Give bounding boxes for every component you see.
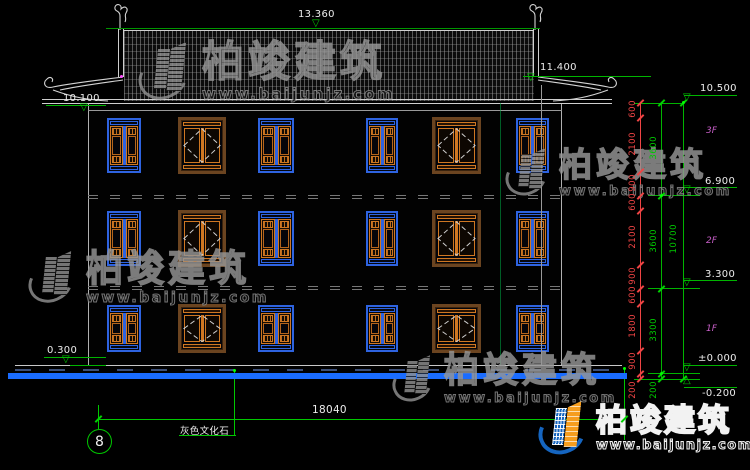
dim-text: 600 <box>628 100 638 118</box>
window-rail <box>110 345 138 349</box>
window-rail <box>437 122 476 126</box>
window-body <box>183 314 221 343</box>
window-body <box>369 313 395 344</box>
lattice <box>280 156 290 163</box>
pane <box>112 136 121 155</box>
lattice <box>521 315 529 322</box>
window-rail <box>110 121 138 125</box>
lattice <box>386 128 394 135</box>
window-casement <box>278 126 292 165</box>
elevation-marker-icon: ▽ <box>683 278 691 288</box>
wall-joint-line <box>500 103 501 366</box>
window-large <box>178 304 226 353</box>
elevation-value: 3.300 <box>705 269 735 280</box>
pane <box>386 323 394 334</box>
window-small <box>366 305 398 352</box>
level-line <box>44 357 106 358</box>
watermark-brand: 柏竣建筑 <box>86 250 269 289</box>
lattice <box>263 315 273 322</box>
lattice-diamond-icon <box>183 127 221 164</box>
elevation-value: 0.300 <box>47 345 77 356</box>
window-rail <box>110 166 138 170</box>
watermark-site: www.baijunjz.com <box>202 85 395 103</box>
dim-text: 900 <box>628 174 638 192</box>
window-casement <box>384 219 396 258</box>
level-line <box>648 373 700 374</box>
window-casement <box>278 219 292 258</box>
window-body <box>437 314 476 343</box>
window-small <box>258 118 294 173</box>
level-line <box>684 280 737 281</box>
pane <box>128 136 137 155</box>
wall-corner-line <box>541 85 542 366</box>
level-line <box>684 95 737 96</box>
dim-node <box>660 372 663 375</box>
dim-node <box>660 194 663 197</box>
lattice <box>386 249 394 256</box>
lattice <box>386 335 394 342</box>
wall-top-line <box>88 110 562 111</box>
lattice <box>371 128 379 135</box>
pane <box>536 229 544 248</box>
window-casement <box>534 313 546 344</box>
window-rail <box>369 214 395 218</box>
window-rail <box>261 345 291 349</box>
brand-logo-icon <box>138 42 194 102</box>
lattice <box>128 221 137 228</box>
window-rail <box>261 166 291 170</box>
pane <box>128 323 137 334</box>
elevation-marker-icon: △ <box>683 376 691 386</box>
watermark-brand: 柏竣建筑 <box>202 40 395 84</box>
lattice <box>386 221 394 228</box>
window-rail <box>369 166 395 170</box>
lattice <box>371 221 379 228</box>
dim-text: 600 <box>628 286 638 304</box>
ridge-line <box>123 28 124 77</box>
lattice <box>128 335 137 342</box>
window-casement <box>369 126 381 165</box>
lattice <box>371 335 379 342</box>
lattice <box>280 315 290 322</box>
window-casement <box>110 126 123 165</box>
brand-logo-icon <box>538 401 588 457</box>
lattice <box>521 128 529 135</box>
ridge-line <box>533 28 534 77</box>
elevation-value: 11.400 <box>540 62 577 73</box>
window-body <box>369 126 395 165</box>
watermark-brand: 柏竣建筑 <box>444 353 617 390</box>
leader-line <box>234 371 235 436</box>
watermark-brand: 柏竣建筑 <box>596 405 750 438</box>
lattice <box>128 315 137 322</box>
window-small <box>516 211 549 266</box>
dim-text: 2100 <box>628 132 638 156</box>
pane <box>263 229 273 248</box>
lattice <box>386 315 394 322</box>
window-rail <box>369 259 395 263</box>
dim-text: 200 <box>649 381 659 399</box>
pane <box>536 323 544 334</box>
lattice <box>521 249 529 256</box>
facade-wall <box>88 103 562 366</box>
ridge-node <box>120 75 123 78</box>
window-rail <box>183 344 221 348</box>
lattice <box>521 221 529 228</box>
elevation-marker-icon: ▽ <box>527 73 535 83</box>
pane <box>371 229 379 248</box>
window-small <box>516 305 549 352</box>
pane <box>263 136 273 155</box>
dim-text: 1800 <box>628 314 638 338</box>
lattice <box>112 221 121 228</box>
window-casement <box>384 313 396 344</box>
floor-label: 1F <box>706 324 717 334</box>
lattice <box>536 335 544 342</box>
window-casement <box>110 313 123 344</box>
eave-line <box>42 103 612 104</box>
level-line <box>523 76 651 77</box>
lattice-diamond-icon <box>437 127 476 164</box>
window-rail <box>369 345 395 349</box>
ridge-line <box>538 28 539 77</box>
window-large <box>432 117 481 174</box>
window-casement <box>519 219 531 258</box>
window-body <box>110 126 138 165</box>
dim-text: 10700 <box>669 224 679 254</box>
floor-label: 3F <box>706 126 717 136</box>
brand-logo-icon <box>392 355 436 403</box>
elevation-value: ±0.000 <box>698 353 737 364</box>
lattice-diamond-icon <box>183 314 221 343</box>
window-casement <box>126 313 139 344</box>
window-casement <box>534 219 546 258</box>
dim-text: 18040 <box>312 404 347 416</box>
dim-text: 3300 <box>649 318 659 342</box>
pane <box>386 229 394 248</box>
ridge-line <box>118 28 119 77</box>
window-small <box>366 211 398 266</box>
watermark: 柏竣建筑www.baijunjz.com <box>28 250 269 306</box>
pane <box>263 323 273 334</box>
elevation-value: -0.200 <box>702 388 736 399</box>
lattice <box>371 315 379 322</box>
lattice <box>536 128 544 135</box>
window-body <box>110 313 138 344</box>
floor-belt-line <box>88 195 562 196</box>
pane <box>371 323 379 334</box>
window-rail <box>110 214 138 218</box>
window-small <box>258 305 294 352</box>
lattice-diamond-icon <box>437 220 476 257</box>
window-body <box>437 220 476 257</box>
window-rail <box>110 308 138 312</box>
window-small <box>107 118 141 173</box>
window-casement <box>278 313 292 344</box>
window-rail <box>369 308 395 312</box>
window-casement <box>384 126 396 165</box>
level-line <box>106 28 540 29</box>
watermark: 柏竣建筑www.baijunjz.com <box>138 40 395 103</box>
elevation-marker-icon: ▽ <box>683 363 691 373</box>
lattice <box>112 315 121 322</box>
lattice <box>112 128 121 135</box>
window-body <box>261 313 291 344</box>
dim-text: 900 <box>628 267 638 285</box>
window-small <box>366 118 398 173</box>
lattice <box>280 128 290 135</box>
window-rail <box>183 215 221 219</box>
window-rail <box>183 122 221 126</box>
pane <box>371 136 379 155</box>
pane <box>521 229 529 248</box>
window-rail <box>437 344 476 348</box>
elevation-value: 6.900 <box>705 176 735 187</box>
lattice-diamond-icon <box>437 314 476 343</box>
lattice <box>263 335 273 342</box>
window-small <box>107 305 141 352</box>
pane <box>280 323 290 334</box>
level-line <box>46 105 106 106</box>
leader-node <box>233 369 236 372</box>
elevation-marker-icon: ▽ <box>683 93 691 103</box>
window-casement <box>261 126 275 165</box>
window-rail <box>261 214 291 218</box>
lattice <box>128 128 137 135</box>
elevation-marker-icon: ▽ <box>62 355 70 365</box>
pane <box>112 323 121 334</box>
elevation-marker-icon: ▽ <box>312 19 320 29</box>
dim-text: 3600 <box>649 136 659 160</box>
lattice <box>280 335 290 342</box>
window-rail <box>437 165 476 169</box>
elevation-value: 10.500 <box>700 83 737 94</box>
elevation-marker-icon: ▽ <box>683 185 691 195</box>
pane <box>386 136 394 155</box>
lattice <box>263 221 273 228</box>
elevation-drawing: 柏竣建筑www.baijunjz.com 柏竣建筑www.baijunjz.co… <box>0 0 750 470</box>
pane <box>280 136 290 155</box>
window-rail <box>261 308 291 312</box>
watermark-site: www.baijunjz.com <box>86 290 269 306</box>
lattice <box>536 249 544 256</box>
window-casement <box>126 126 139 165</box>
window-casement <box>261 313 275 344</box>
lattice <box>280 221 290 228</box>
dim-text: 900 <box>628 352 638 370</box>
lattice <box>112 335 121 342</box>
window-rail <box>183 165 221 169</box>
level-line <box>70 365 106 366</box>
dim-text: 200 <box>628 381 638 399</box>
window-body <box>437 127 476 164</box>
dim-text: 3600 <box>649 229 659 253</box>
elevation-marker-icon: ▽ <box>80 103 88 113</box>
lattice <box>536 221 544 228</box>
dim-text: 2100 <box>628 225 638 249</box>
pane <box>521 323 529 334</box>
pane <box>112 229 121 248</box>
lattice <box>371 156 379 163</box>
lattice <box>386 156 394 163</box>
lattice <box>371 249 379 256</box>
pane <box>128 229 137 248</box>
watermark: 柏竣建筑www.baijunjz.com <box>505 148 732 199</box>
window-large <box>432 304 481 353</box>
window-body <box>183 127 221 164</box>
level-line <box>648 288 700 289</box>
window-rail <box>369 121 395 125</box>
window-rail <box>437 309 476 313</box>
elevation-value: 10.100 <box>63 93 100 104</box>
brand-logo-icon <box>28 251 78 305</box>
dim-node <box>623 367 626 370</box>
window-large <box>432 210 481 267</box>
roof-ornament-icon <box>115 5 127 30</box>
lattice <box>521 335 529 342</box>
roof-ornament-icon <box>530 5 542 30</box>
level-line <box>684 365 737 366</box>
floor-label: 2F <box>706 236 717 246</box>
watermark: 柏竣建筑www.baijunjz.com <box>392 353 617 406</box>
window-body <box>261 126 291 165</box>
dim-text: 600 <box>628 193 638 211</box>
material-note: 灰色文化石 <box>180 423 229 437</box>
lattice <box>536 315 544 322</box>
elevation-value: 13.360 <box>298 9 335 20</box>
window-large <box>178 117 226 174</box>
window-rail <box>437 258 476 262</box>
lattice <box>280 249 290 256</box>
floor-belt-line <box>88 198 562 199</box>
window-body <box>369 219 395 258</box>
lattice <box>263 128 273 135</box>
watermark-colored: 柏竣建筑www.baijunjz.com <box>538 401 750 457</box>
watermark-site: www.baijunjz.com <box>596 438 750 453</box>
window-casement <box>369 313 381 344</box>
brand-logo-icon <box>505 148 551 198</box>
window-rail <box>183 309 221 313</box>
lattice <box>263 156 273 163</box>
window-casement <box>369 219 381 258</box>
window-rail <box>437 215 476 219</box>
window-rail <box>261 121 291 125</box>
window-casement <box>519 313 531 344</box>
grid-bubble-label: 8 <box>95 435 104 449</box>
grid-bubble: 8 <box>87 429 112 454</box>
lattice <box>128 156 137 163</box>
pane <box>280 229 290 248</box>
lattice <box>112 156 121 163</box>
